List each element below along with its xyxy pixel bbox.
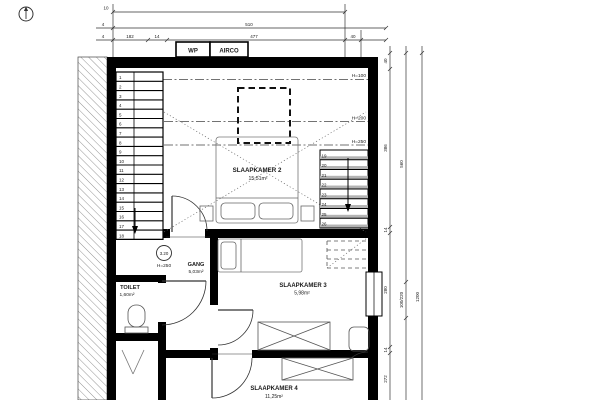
stair-step-number: 19 (322, 153, 328, 158)
wall-top (107, 57, 378, 68)
wardrobe-slaapkamer3 (258, 322, 330, 350)
door-slaapkamer4 (212, 354, 252, 398)
room-area-slaapkamer3: 5,98m² (294, 291, 310, 297)
nightstand (301, 206, 314, 221)
dim-label: 1200 (415, 291, 420, 302)
stair-step-number: 16 (119, 215, 125, 220)
floor-plan-canvas: 10 4 510 4 182 14 477 40 WP AIRCO (0, 0, 600, 400)
stair-step-number: 25 (322, 212, 328, 217)
height-line-labels: H=100 H=200 H=250 (352, 73, 367, 145)
height-label: H=200 (352, 116, 367, 122)
right-dimension-lines (388, 46, 424, 400)
wall-mid (205, 229, 378, 238)
stair-step-number: 18 (119, 233, 125, 238)
right-dimension-labels: 40 386 14 280 14 272 560 100/220 1200 (383, 58, 420, 383)
stairs-left: 123456789101112131415161718 (116, 72, 163, 239)
dim-label: 280 (383, 286, 388, 294)
top-dimension-labels: 10 4 510 4 182 14 477 40 (102, 6, 356, 40)
dim-label: 14 (154, 34, 160, 39)
stair-step-number: 20 (322, 163, 328, 168)
stair-step-number: 23 (322, 192, 328, 197)
wall-left (107, 57, 116, 400)
wall-gang-left-b (158, 322, 166, 400)
height-label: H=100 (352, 73, 367, 79)
room-area-gang: 5,03m² (189, 269, 204, 275)
room-name-slaapkamer2: SLAAPKAMER 2 (233, 167, 282, 174)
wall-toilet-top (107, 275, 158, 282)
stair-step-number: 17 (119, 224, 125, 229)
dim-label: 560 (399, 160, 404, 168)
dim-label: 272 (383, 375, 388, 383)
wall-bottom-left (166, 350, 212, 358)
dim-label: 14 (383, 347, 388, 353)
dim-label: 182 (126, 34, 134, 39)
room-area-toilet: 1,60m² (120, 292, 135, 298)
stair-step-number: 21 (322, 173, 328, 178)
room-name-toilet: TOILET (120, 285, 140, 291)
dim-label: 100/220 (399, 291, 404, 308)
wall-bottom-right (252, 350, 368, 358)
stair-step-number: 11 (119, 168, 124, 173)
stair-step-number: 26 (322, 222, 328, 227)
party-wall-hatch (78, 57, 107, 400)
door-toilet (162, 281, 206, 325)
height-label: H=250 (352, 139, 367, 145)
room-name-gang: GANG (188, 262, 205, 268)
shaft-mark (122, 350, 144, 374)
room-area-slaapkamer4: 11,25m² (265, 394, 283, 400)
door-slaapkamer3 (218, 310, 253, 345)
stair-step-number: 22 (322, 183, 328, 188)
wp-label: WP (188, 49, 198, 55)
stairs-right: 1920212223242526 (320, 150, 368, 268)
roof-units: WP AIRCO (176, 42, 248, 57)
level-marker: 3.20 H=250 (157, 246, 172, 270)
dim-label: 40 (383, 58, 388, 64)
level-value: 3.20 (160, 251, 169, 256)
dim-label: 14 (383, 227, 388, 233)
stair-step-number: 10 (119, 159, 125, 164)
dim-label: 4 (102, 34, 105, 39)
wall-gang-left-a (158, 275, 166, 283)
stair-step-number: 14 (119, 196, 125, 201)
floor-plan-drawing: 10 4 510 4 182 14 477 40 WP AIRCO (0, 0, 600, 400)
window-right (366, 272, 382, 316)
wall-toilet-bottom (107, 333, 166, 341)
stairs-right-dashed-flight (327, 241, 368, 268)
stair-step-number: 12 (119, 178, 125, 183)
dim-label: 4 (102, 22, 105, 27)
room-name-slaapkamer4: SLAAPKAMER 4 (250, 386, 298, 392)
wall-right-upper (368, 57, 378, 272)
stair-step-number: 15 (119, 205, 125, 210)
stair-step-number: 24 (322, 202, 328, 207)
dim-label: 386 (383, 144, 388, 152)
toilet-fixture (125, 305, 148, 333)
dim-label: 477 (250, 34, 258, 39)
wall-right-lower (368, 316, 378, 400)
wardrobe-slaapkamer4 (282, 358, 353, 380)
level-height: H=250 (157, 263, 172, 269)
room-area-slaapkamer2: 15,51m² (248, 176, 267, 182)
dim-label: 40 (350, 34, 356, 39)
basin (349, 327, 369, 351)
stair-step-number: 13 (119, 187, 125, 192)
bed-single (218, 239, 302, 272)
north-indicator-icon (19, 7, 33, 22)
door-slaapkamer2 (166, 196, 210, 237)
airco-label: AIRCO (219, 49, 239, 55)
dim-label: 510 (245, 22, 253, 27)
wall-gang-right-a (210, 238, 218, 305)
roof-window (238, 88, 290, 143)
room-name-slaapkamer3: SLAAPKAMER 3 (279, 283, 327, 289)
dim-label: 10 (103, 6, 109, 11)
